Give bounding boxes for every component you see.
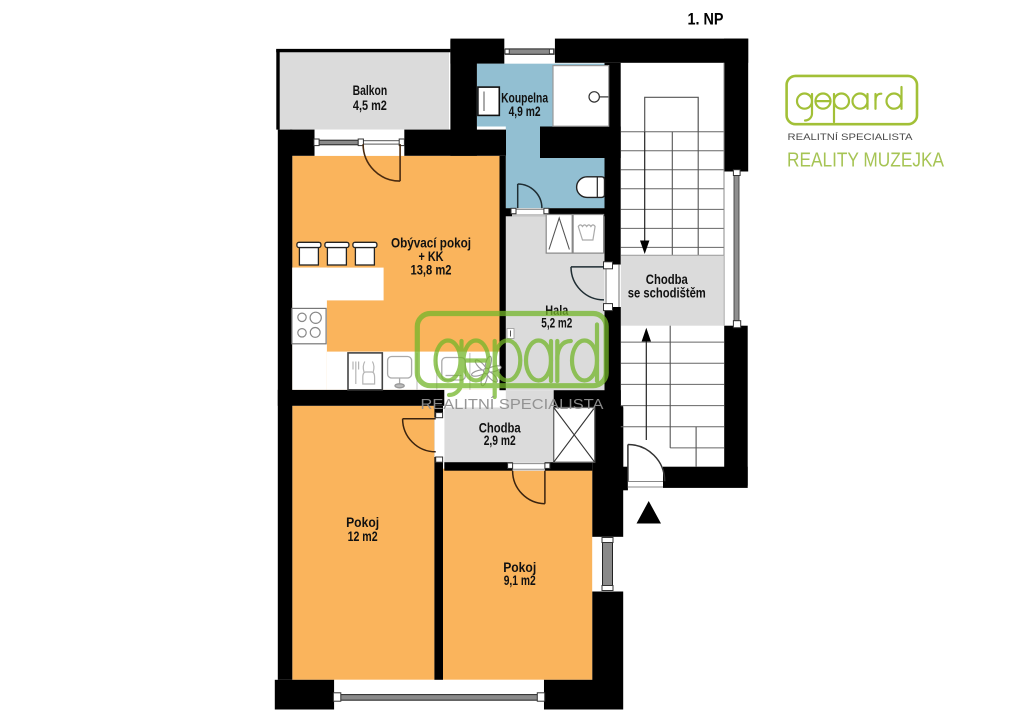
svg-text:13,8 m2: 13,8 m2	[411, 263, 452, 278]
svg-text:Pokoj: Pokoj	[346, 515, 379, 530]
svg-text:2,9 m2: 2,9 m2	[484, 433, 516, 448]
svg-text:4,5 m2: 4,5 m2	[353, 98, 387, 113]
svg-text:REALITNÍ SPECIALISTA: REALITNÍ SPECIALISTA	[788, 132, 914, 142]
svg-text:1. NP: 1. NP	[688, 11, 724, 29]
svg-text:12 m2: 12 m2	[348, 529, 378, 544]
svg-text:REALITNÍ SPECIALISTA: REALITNÍ SPECIALISTA	[421, 396, 604, 413]
svg-text:se schodištěm: se schodištěm	[628, 286, 706, 301]
svg-text:Balkon: Balkon	[353, 83, 388, 98]
svg-text:5,2 m2: 5,2 m2	[541, 315, 572, 330]
svg-text:4,9 m2: 4,9 m2	[509, 104, 541, 119]
svg-text:REALITY MUZEJKA: REALITY MUZEJKA	[787, 150, 945, 172]
svg-text:9,1 m2: 9,1 m2	[504, 573, 536, 588]
